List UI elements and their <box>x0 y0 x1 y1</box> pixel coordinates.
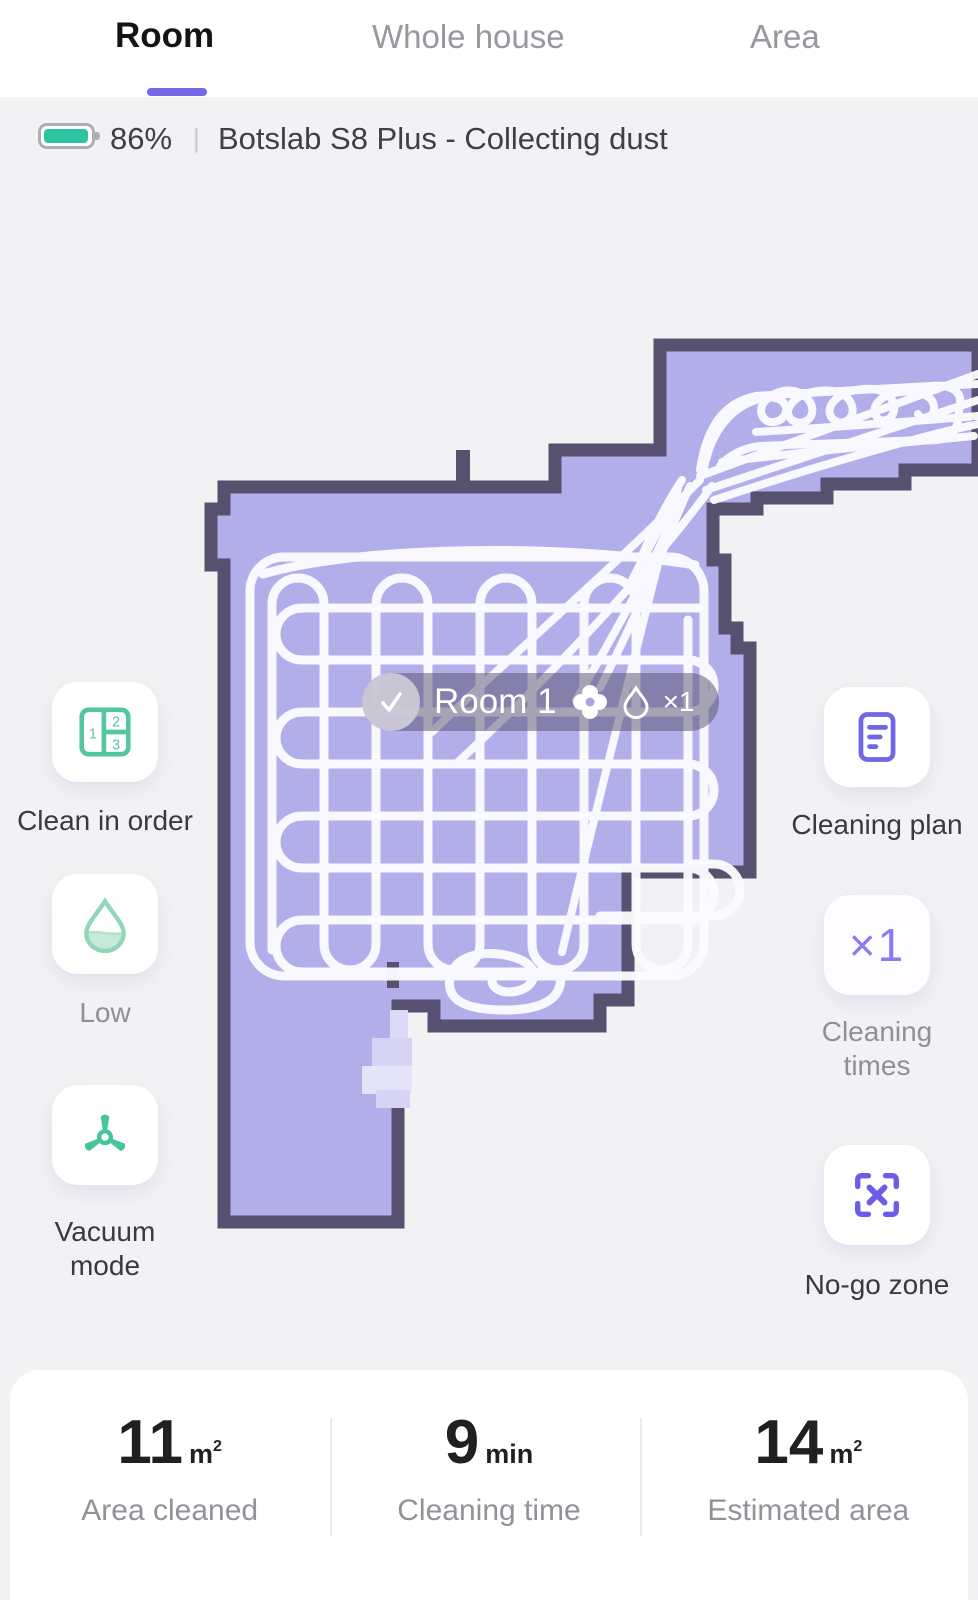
vacuum-mode-label: Vacuum mode <box>35 1215 175 1283</box>
check-icon <box>375 686 407 718</box>
stat-estimated-area: 14 m2 Estimated area <box>649 1370 968 1600</box>
estimated-area-label: Estimated area <box>707 1494 909 1528</box>
fan-speed-icon <box>571 683 609 721</box>
room-clean-count: ×1 <box>663 686 695 718</box>
device-status-row: 86% | Botslab S8 Plus - Collecting dust <box>0 97 978 197</box>
estimated-area-value: 14 <box>754 1412 823 1474</box>
clean-in-order-icon: 1 2 3 <box>74 701 136 763</box>
room-selection-pill[interactable]: Room 1 ×1 <box>362 673 719 731</box>
tab-whole-house[interactable]: Whole house <box>372 18 565 56</box>
battery-icon <box>38 123 95 149</box>
svg-text:1: 1 <box>89 727 97 743</box>
no-go-zone-button[interactable] <box>824 1145 930 1245</box>
stats-divider <box>330 1418 332 1536</box>
cleaning-times-button[interactable]: ×1 <box>824 895 930 995</box>
cleaning-time-value: 9 <box>445 1412 479 1474</box>
top-tab-bar: Room Whole house Area <box>0 0 978 97</box>
no-go-zone-icon <box>847 1165 907 1225</box>
water-level-value-label: Low <box>25 996 185 1030</box>
water-level-icon <box>621 685 651 719</box>
cleaning-plan-label: Cleaning plan <box>784 808 970 842</box>
tab-room[interactable]: Room <box>115 16 214 56</box>
fan-icon <box>75 1105 135 1165</box>
cleaning-stats-panel: 11 m2 Area cleaned 9 min Cleaning time 1… <box>10 1370 968 1600</box>
device-status-text: Botslab S8 Plus - Collecting dust <box>218 121 668 157</box>
stats-divider <box>640 1418 642 1536</box>
active-tab-indicator <box>147 88 207 96</box>
svg-text:3: 3 <box>112 738 120 754</box>
vacuum-mode-button[interactable] <box>52 1085 158 1185</box>
area-cleaned-value: 11 <box>117 1412 183 1474</box>
cleaning-plan-icon <box>847 706 907 768</box>
room-name-label: Room 1 <box>434 682 557 722</box>
battery-fill <box>44 129 88 143</box>
cleaning-plan-button[interactable] <box>824 687 930 787</box>
area-cleaned-unit: m2 <box>189 1439 222 1470</box>
cleaning-times-value: ×1 <box>849 918 905 972</box>
clean-in-order-button[interactable]: 1 2 3 <box>52 682 158 782</box>
room-selected-check <box>362 673 420 731</box>
tab-area[interactable]: Area <box>750 18 820 56</box>
battery-percent: 86% <box>110 121 172 157</box>
door-stub-top <box>456 450 470 486</box>
water-drop-icon <box>76 893 134 955</box>
stat-cleaning-time: 9 min Cleaning time <box>329 1370 648 1600</box>
cleaning-times-label: Cleaning times <box>797 1015 957 1083</box>
area-cleaned-label: Area cleaned <box>81 1494 258 1528</box>
stat-area-cleaned: 11 m2 Area cleaned <box>10 1370 329 1600</box>
no-go-zone-label: No-go zone <box>784 1268 970 1302</box>
battery-nub <box>95 132 100 140</box>
cleaning-map[interactable] <box>0 0 978 1600</box>
estimated-area-unit: m2 <box>829 1439 862 1470</box>
clean-in-order-label: Clean in order <box>12 804 198 838</box>
svg-text:2: 2 <box>112 714 120 730</box>
cleaning-time-unit: min <box>485 1439 533 1470</box>
water-level-button[interactable] <box>52 874 158 974</box>
cleaning-time-label: Cleaning time <box>397 1494 580 1528</box>
status-separator: | <box>193 123 200 154</box>
